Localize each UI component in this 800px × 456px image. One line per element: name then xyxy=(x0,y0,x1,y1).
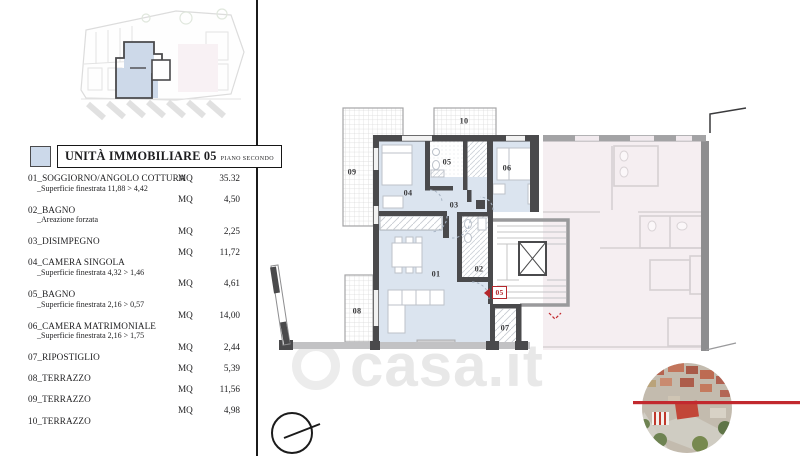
site-overview-mini-plan xyxy=(26,2,256,128)
north-compass-icon xyxy=(272,413,320,453)
entrance-arrow-icon xyxy=(484,288,490,298)
room-label-10: 10 xyxy=(460,117,469,126)
room-table-line: 07_RIPOSTIGLIO xyxy=(28,352,240,363)
main-floor-plan xyxy=(262,0,800,456)
room-table-line: MQ4,98 xyxy=(28,405,240,416)
striped-building xyxy=(652,412,669,425)
legend-title: UNITÀ IMMOBILIARE 05 xyxy=(65,146,217,167)
room-label-01: 01 xyxy=(432,270,441,279)
room-label-03: 03 xyxy=(450,201,459,210)
room-table-line: 01_SOGGIORNO/ANGOLO COTTURAMQ35.32 xyxy=(28,173,240,184)
room-table-line: 03_DISIMPEGNO xyxy=(28,236,240,247)
red-section-line xyxy=(633,401,800,404)
room-sub-line: _Superficie finestrata 2,16 > 1,75 xyxy=(28,331,240,342)
room-label-06: 06 xyxy=(503,164,512,173)
room-table-line: MQ2,25 xyxy=(28,226,240,237)
legend-title-box: UNITÀ IMMOBILIARE 05 PIANO SECONDO xyxy=(57,145,282,168)
room-sub-line: _Superficie finestrata 4,32 > 1,46 xyxy=(28,268,240,279)
floor-plan-document: UNITÀ IMMOBILIARE 05 PIANO SECONDO 01_SO… xyxy=(0,0,800,456)
room-label-07: 07 xyxy=(501,324,510,333)
room-table-line: MQ2,44 xyxy=(28,342,240,353)
room-table-line: MQ5,39 xyxy=(28,363,240,374)
room-sub-line: _Superficie finestrata 11,88 > 4,42 xyxy=(28,184,240,195)
room-table-line: 06_CAMERA MATRIMONIALE xyxy=(28,321,240,332)
room-sub-line: _Superficie finestrata 2,16 > 0,57 xyxy=(28,300,240,311)
room-sub-line: _Areazione forzata xyxy=(28,215,240,226)
room-table: 01_SOGGIORNO/ANGOLO COTTURAMQ35.32_Super… xyxy=(28,173,240,426)
entrance-badge-number: 05 xyxy=(492,286,507,299)
room-label-08: 08 xyxy=(353,307,362,316)
room-table-line: 10_TERRAZZO xyxy=(28,416,240,427)
room-table-line: MQ4,61 xyxy=(28,278,240,289)
room-table-line: MQ4,50 xyxy=(28,194,240,205)
unit-color-swatch xyxy=(30,146,51,167)
legend-title-row: UNITÀ IMMOBILIARE 05 PIANO SECONDO xyxy=(30,145,282,168)
aerial-photo xyxy=(640,362,740,455)
room-table-line: MQ11,56 xyxy=(28,384,240,395)
room-table-line: 08_TERRAZZO xyxy=(28,373,240,384)
room-table-line: 09_TERRAZZO xyxy=(28,394,240,405)
room-label-09: 09 xyxy=(348,168,357,177)
entrance-badge: 05 xyxy=(484,286,507,299)
adjacent-unit-mini xyxy=(178,44,218,92)
room-table-line: 04_CAMERA SINGOLA xyxy=(28,257,240,268)
room-table-line: MQ14,00 xyxy=(28,310,240,321)
room-table-line: 05_BAGNO xyxy=(28,289,240,300)
vertical-divider xyxy=(256,0,258,456)
room-table-line: MQ11,72 xyxy=(28,247,240,258)
room-label-02: 02 xyxy=(475,265,484,274)
road-hatch xyxy=(88,102,224,118)
room-table-line: 02_BAGNO xyxy=(28,205,240,216)
room-label-04: 04 xyxy=(404,189,413,198)
room-label-05: 05 xyxy=(443,158,452,167)
section-mark xyxy=(710,108,746,133)
